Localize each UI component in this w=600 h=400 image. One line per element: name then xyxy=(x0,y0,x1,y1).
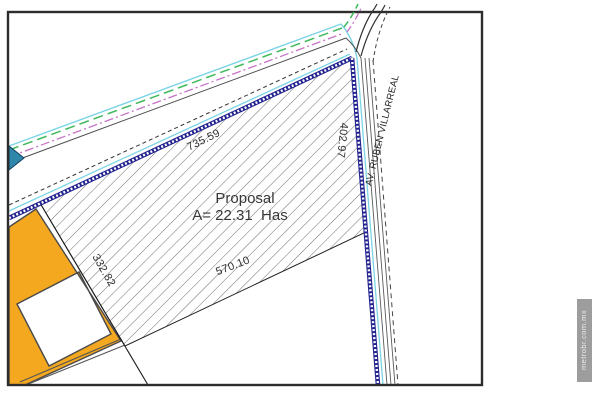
watermark-text: metrobr.com.mx xyxy=(579,310,588,370)
watermark: metrobr.com.mx xyxy=(577,299,592,382)
survey-plan-canvas: 735.59 402.97 332.82 570.10 Proposal A= … xyxy=(0,0,600,400)
proposal-label: Proposal xyxy=(215,190,274,207)
proposal-area-label: A= 22.31 Has xyxy=(192,207,287,224)
survey-plan-drawing: 735.59 402.97 332.82 570.10 Proposal A= … xyxy=(0,0,600,400)
